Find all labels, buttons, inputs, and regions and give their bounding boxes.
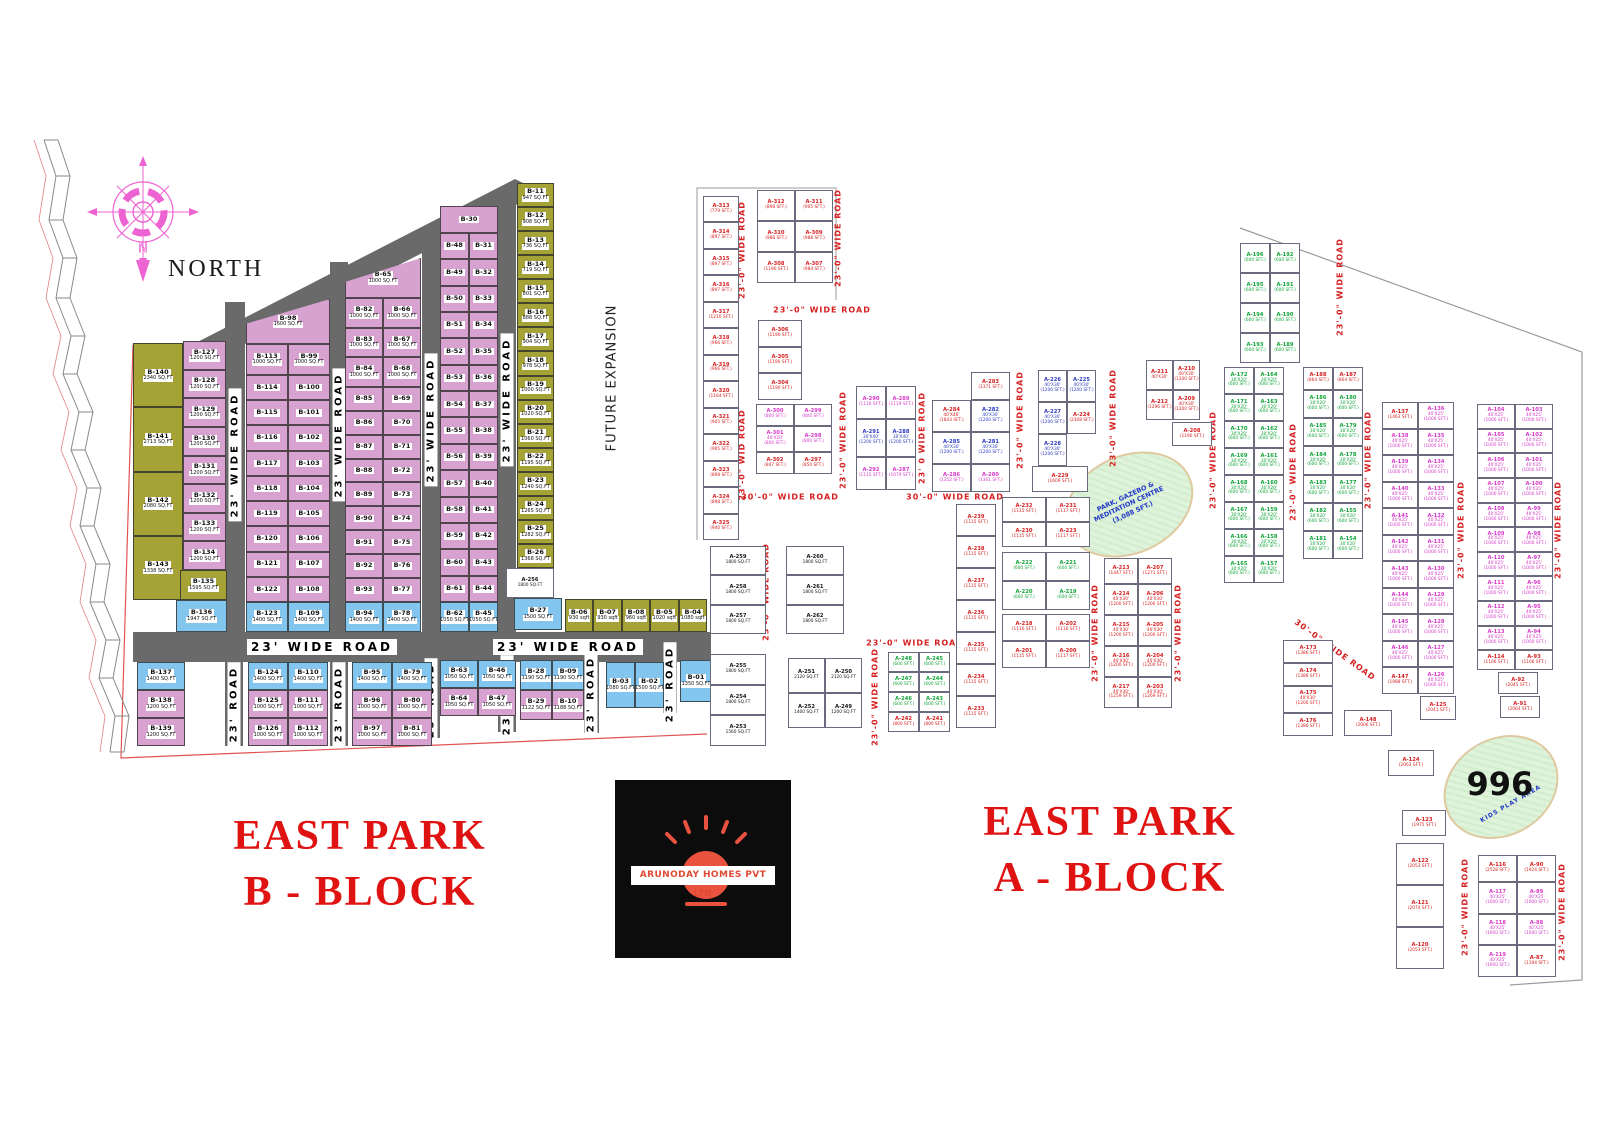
road-label-chip: 23' WIDE ROAD: [229, 389, 242, 522]
plot-id: B-53: [444, 374, 465, 381]
plot-cell: A-195(600 SFT.): [1240, 273, 1270, 303]
plot-size: (600 SFT.): [893, 663, 915, 668]
plot-size: 801 SQ.FT: [522, 292, 550, 298]
plot-id: B-108: [296, 586, 321, 593]
plot-size: 1400 SQ.FT: [252, 618, 283, 624]
plot-cell: B-102: [288, 425, 330, 450]
plot-size: (600 SFT.): [1337, 548, 1359, 553]
plot-id: B-73: [392, 491, 413, 498]
plot-size: 1000 SQ.FT: [349, 373, 380, 379]
plot-zone-b-pair-d-blue: B-941400 SQ.FTB-781400 SQ.FT: [345, 602, 421, 632]
plot-cell: B-281190 SQ.FT: [520, 660, 552, 690]
plot-cell: B-120: [246, 526, 288, 551]
plot-cell: A-321(905 SFT.): [703, 408, 739, 434]
plot-cell: A-15530'X20'(600 SFT.): [1333, 503, 1363, 531]
plot-cell: B-07930 sqft: [593, 599, 621, 632]
plot-id: B-88: [354, 467, 375, 474]
plot-cell: B-74: [383, 506, 421, 530]
plot-cell: B-50: [440, 286, 469, 312]
plot-cell: B-811000 SQ.FT: [392, 718, 432, 746]
plot-cell: B-101188 SQ.FT: [552, 690, 584, 720]
plot-size: 1400 SQ.FT: [387, 618, 418, 624]
plot-cell: B-1402340 SQ.FT: [133, 343, 183, 407]
plot-cell: A-9440'X25'(1000 SFT.): [1515, 626, 1553, 651]
plot-size: 1200 SQ.FT: [146, 733, 177, 739]
plot-cell: A-309(988 SFT.): [795, 221, 833, 252]
plot-cell: B-14719 SQ.FT: [517, 255, 554, 279]
plot-id: B-41: [473, 506, 494, 513]
plot-zone-b-olive-left: B-1402340 SQ.FTB-1412713 SQ.FTB-1422080 …: [133, 343, 183, 600]
plot-cell: A-2611800 SQ.FT: [786, 575, 844, 604]
plot-cell: A-28240'X30'(1200 SFT.): [971, 400, 1010, 432]
plot-cell: A-20340'X30'(1269 SFT.): [1138, 677, 1172, 708]
plot-cell: B-77: [383, 578, 421, 602]
plot-size: 1000 SQ.FT: [293, 733, 324, 739]
plot-cell: A-17730'X20'(600 SFT.): [1333, 475, 1363, 503]
plot-cell: A-17030'X20'(600 SFT.): [1224, 421, 1254, 448]
plot-size: (1843 SFT.): [939, 419, 963, 424]
plot-cell: A-137(1463 SFT.): [1382, 402, 1418, 429]
plot-size: 904 SQ.FT: [522, 340, 550, 346]
road-label-chip: 23' ROAD: [228, 662, 241, 746]
plot-size: (1115 SFT.): [964, 681, 988, 686]
plot-cell: A-120(2053 SFT.): [1396, 927, 1444, 969]
plot-cell: A-14540'X25'(1000 SFT.): [1382, 614, 1418, 641]
plot-cell: A-219(600 SFT.): [1046, 581, 1090, 610]
plot-size: (1210 SFT.): [709, 316, 733, 321]
plot-size: (1190 SFT.): [1180, 435, 1204, 440]
plot-size: 2080 SQ.FT: [143, 504, 174, 510]
plot-size: (1200 SFT.): [1174, 378, 1198, 383]
plot-cell: A-8940'X25'(1000 SFT.): [1517, 882, 1556, 914]
plot-id: B-87: [354, 443, 375, 450]
plot-cell: A-20440'X30'(1200 SFT.): [1138, 646, 1172, 677]
plot-size: (600 SFT.): [1337, 435, 1359, 440]
plot-size: (1000 SFT.): [1522, 518, 1546, 523]
plot-size: (1609 SFT.): [1048, 480, 1072, 485]
road-label-text: 23'-0" WIDE ROAD: [1109, 369, 1118, 467]
plot-size: (1115 SFT.): [859, 474, 883, 479]
road-label-chip: 23' ROAD: [664, 642, 677, 726]
plot-id: B-90: [354, 515, 375, 522]
plot-cell: A-14640'X25'(1000 SFT.): [1382, 641, 1418, 668]
plot-cell: B-122: [246, 577, 288, 602]
plot-cell: A-201(1115 SFT.): [1002, 641, 1046, 668]
plot-size: 1080 SQ.FT: [606, 686, 635, 692]
plot-size: (600 SFT.): [1337, 492, 1359, 497]
plot-size: 1190 SQ.FT: [521, 676, 552, 682]
plot-id: B-117: [254, 460, 279, 467]
plot-cell: B-40: [469, 470, 498, 496]
plot-size: (800 SFT.): [802, 415, 824, 420]
plot-size: 1000 SQ.FT: [357, 733, 388, 739]
plot-cell: B-1331200 SQ.FT: [183, 513, 226, 542]
road-label-text: 23'-0" WIDE ROAD: [773, 306, 871, 315]
plot-size: (600 SFT.): [893, 703, 915, 708]
plot-size: (1352 SFT.): [939, 479, 963, 484]
plot-size: (1200 SFT.): [1109, 664, 1133, 669]
plot-cell: A-16030'X20'(600 SFT.): [1254, 475, 1284, 502]
plot-size: (1116 SFT.): [1056, 628, 1080, 633]
plot-cell: A-16930'X20'(600 SFT.): [1224, 448, 1254, 475]
plot-cell: A-314(897 SFT.): [703, 222, 739, 248]
plot-size: 1080 sqft: [680, 616, 706, 622]
plot-cell: B-16888 SQ.FT: [517, 303, 554, 327]
plot-zone-a-col-173: A-173(1386 SFT.)A-174(1386 SFT.)A-17540'…: [1283, 640, 1333, 736]
plot-cell: B-051020 sqft: [650, 599, 678, 632]
plot-cell: A-297(850 SFT.): [794, 452, 832, 474]
plot-id: B-61: [444, 585, 465, 592]
plot-size: 1200 SQ.FT: [189, 528, 220, 534]
plot-size: 908 SQ.FT: [522, 220, 550, 226]
plot-cell: B-261368 SQ.FT: [517, 544, 554, 568]
plot-size: (600 SFT.): [1013, 596, 1035, 601]
plot-cell: A-9940'X25'(1000 SFT.): [1515, 503, 1553, 528]
plot-size: 1200 SQ.FT: [189, 385, 220, 391]
plot-cell: B-06930 sqft: [565, 599, 593, 632]
plot-size: 1282 SQ.FT: [520, 533, 551, 539]
plot-cell: A-16630'X20'(600 SFT.): [1224, 529, 1254, 556]
plot-id: B-58: [444, 506, 465, 513]
a-block-title-line2: A - BLOCK: [950, 854, 1270, 902]
plot-cell: A-22840'X30'(1200 SFT.): [1038, 434, 1067, 466]
plot-cell: B-801000 SQ.FT: [392, 690, 432, 718]
plot-size: (966 SFT.): [710, 342, 732, 347]
plot-cell: A-313(779 SFT.): [703, 196, 739, 222]
compass-n-letter: N: [138, 241, 148, 256]
plot-cell: B-461050 SQ.FT: [478, 660, 516, 688]
plot-cell: A-174(1386 SFT.): [1283, 663, 1333, 686]
plot-zone-b-pair-c-blue: B-1231400 SQ.FTB-1091400 SQ.FT: [246, 602, 330, 632]
plot-cell: B-621050 SQ.FT: [440, 602, 469, 632]
plot-cell: B-241265 SQ.FT: [517, 496, 554, 520]
plot-cell: A-187(864 SFT.): [1333, 367, 1363, 390]
plot-size: (1924 SFT.): [1524, 869, 1548, 874]
plot-size: 1600 SQ.FT: [273, 322, 304, 328]
plot-cell: B-1101400 SQ.FT: [288, 662, 328, 690]
plot-zone-a-col-122: A-122(2053 SFT.)A-121(2074 SFT.)A-120(20…: [1396, 843, 1444, 969]
plot-size: (600 SFT.): [924, 703, 946, 708]
plot-cell: B-221195 SQ.FT: [517, 448, 554, 472]
plot-size: (600 SFT.): [1013, 567, 1035, 572]
plot-cell: A-116(2528 SFT.): [1478, 855, 1517, 882]
plot-cell: A-202(1116 SFT.): [1046, 614, 1090, 641]
plot-cell: A-11140'X25'(1000 SFT.): [1477, 576, 1515, 601]
survey-strip-boundary: [34, 140, 129, 752]
plot-cell: A-124(2063 SFT.): [1388, 750, 1434, 776]
plot-zone-b-olive-row: B-06930 sqftB-07930 sqftB-08960 sqftB-05…: [565, 599, 707, 632]
plot-cell: A-17540'X30'(1200 SFT.): [1283, 686, 1333, 714]
plot-size: (600 SFT.): [1228, 464, 1250, 469]
plot-size: (1190 SFT.): [768, 334, 792, 339]
plot-cell: B-88: [345, 459, 383, 483]
future-expansion-label: FUTURE EXPANSION: [605, 305, 620, 452]
plot-size: (2053 SFT.): [1408, 949, 1432, 954]
plot-cell: B-021500 SQ.FT: [635, 662, 664, 708]
plot-id: B-77: [392, 586, 413, 593]
plot-size: (1000 SFT.): [1522, 493, 1546, 498]
plot-cell: B-104: [288, 476, 330, 501]
plot-zone-a-grid-251: A-2512120 SQ.FTA-2502120 SQ.FTA-2521400 …: [788, 658, 862, 728]
plot-size: (1000 SFT.): [1524, 932, 1548, 937]
plot-cell: A-15430'X20'(600 SFT.): [1333, 531, 1363, 559]
plot-cell: B-1361947 SQ.FT: [176, 600, 227, 632]
plot-cell: A-315(897 SFT.): [703, 249, 739, 275]
plot-cell: A-2521400 SQ.FT: [788, 693, 825, 728]
plot-cell: A-22740'X30'(1200 SFT.): [1038, 402, 1067, 434]
plot-cell: A-90(1924 SFT.): [1517, 855, 1556, 882]
plot-zone-a-pair-232: A-232(1115 SFT.)A-231(1117 SFT.)A-230(11…: [1002, 497, 1090, 547]
developer-logo: ARUNODAY HOMES PVT LTD: [615, 780, 791, 958]
plot-cell: B-38: [469, 417, 498, 443]
plot-size: 1000 SQ.FT: [349, 343, 380, 349]
plot-size: (1200 SFT.): [1109, 603, 1133, 608]
plot-cell: A-298(800 SFT.): [794, 426, 832, 453]
plot-size: (600 SFT.): [1228, 572, 1250, 577]
plot-cell: A-9740'X25'(1000 SFT.): [1515, 552, 1553, 577]
plot-size: (2053 SFT.): [1408, 865, 1432, 870]
plot-cell: B-48: [440, 233, 469, 259]
plot-size: (1106 SFT.): [1522, 661, 1546, 666]
plot-zone-a-col-255: A-2551800 SQ.FTA-2541800 SQ.FTA-2531560 …: [710, 654, 766, 746]
plot-size: 1060 SQ.FT: [520, 437, 551, 443]
plot-cell: A-290(1110 SFT.): [856, 386, 886, 419]
plot-cell: A-13040'X25'(1000 SFT.): [1418, 561, 1454, 588]
plot-cell: B-42: [469, 523, 498, 549]
plot-size: (1200 SFT.): [1296, 702, 1320, 707]
plot-cell: A-242(800 SFT.): [888, 712, 919, 732]
plot-cell: A-317(1210 SFT.): [703, 302, 739, 328]
plot-size: (1000 SFT.): [1484, 542, 1508, 547]
plot-size: (1117 SFT.): [1056, 535, 1080, 540]
plot-cell: A-14440'X25'(1000 SFT.): [1382, 588, 1418, 615]
plot-zone-b-pair-02: B-031080 SQ.FTB-021500 SQ.FT: [606, 662, 664, 708]
plot-size: (2045 SFT.): [1506, 684, 1530, 689]
plot-size: (897 SFT.): [710, 289, 732, 294]
plot-size: (1200 SFT.): [1174, 408, 1198, 413]
plot-size: 1265 SQ.FT: [520, 509, 551, 515]
plot-cell: A-21740'X30'(1259 SFT.): [1104, 677, 1138, 708]
plot-size: (1988 SFT.): [1388, 681, 1412, 686]
plot-zone-a-148: A-148(2006 SFT.): [1344, 710, 1392, 736]
plot-size: 1000 SQ.FT: [387, 314, 418, 320]
plot-cell: B-191000 SQ.FT: [517, 376, 554, 400]
plot-cell: B-1321200 SQ.FT: [183, 484, 226, 513]
plot-cell: A-200(1117 SFT.): [1046, 641, 1090, 668]
plot-cell: A-122(2053 SFT.): [1396, 843, 1444, 885]
plot-zone-b-27: B-271500 SQ.FT: [514, 598, 562, 630]
plot-size: (1200 SFT.): [1040, 421, 1064, 426]
plot-size: 1800 SQ.FT: [726, 591, 751, 596]
road-label-text: 30'-0" WIDE ROAD: [741, 493, 839, 502]
plot-size: 1200 SQ.FT: [189, 557, 220, 563]
plot-cell: B-107: [288, 552, 330, 577]
plot-size: 1400 SQ.FT: [349, 618, 380, 624]
plot-zone-a-strip-mid: A-306(1190 SFT.)A-305(1190 SFT.)A-304(11…: [758, 320, 802, 400]
plot-cell: A-21440'X30'(1200 SFT.): [1104, 584, 1138, 615]
plot-cell: B-15801 SQ.FT: [517, 279, 554, 303]
plot-size: (600 SFT.): [1307, 548, 1329, 553]
plot-cell: A-196(600 SFT.): [1240, 243, 1270, 273]
plot-size: 1000 SQ.FT: [397, 733, 428, 739]
plot-size: 1368 SQ.FT: [520, 557, 551, 563]
plot-cell: A-22540'X30'(1200 SFT.): [1067, 370, 1096, 402]
plot-cell: B-831000 SQ.FT: [345, 328, 383, 358]
plot-size: (1115 SFT.): [964, 649, 988, 654]
plot-id: B-103: [296, 460, 321, 467]
plot-cell: A-13840'X25'(1000 SFT.): [1382, 429, 1418, 456]
plot-cell: A-10640'X25'(1000 SFT.): [1477, 453, 1515, 478]
plot-cell: A-13540'X25'(1000 SFT.): [1418, 429, 1454, 456]
plot-id: B-39: [473, 453, 494, 460]
plot-size: 1050 SQ.FT: [444, 703, 475, 709]
plot-size: (1296 SFT.): [1147, 406, 1171, 411]
plot-size: (600 SFT.): [1337, 407, 1359, 412]
plot-id: B-42: [473, 532, 494, 539]
plot-cell: A-247(600 SFT.): [888, 672, 919, 692]
plot-cell: A-308(1190 SFT.): [757, 252, 795, 283]
plot-size: 960 sqft: [625, 616, 648, 622]
plot-cell: B-091190 SQ.FT: [552, 660, 584, 690]
plot-size: (1000 SFT.): [1388, 578, 1412, 583]
plot-cell: B-60: [440, 549, 469, 575]
plot-size: (600 SFT.): [1274, 259, 1296, 264]
plot-size: 1000 SQ.FT: [349, 314, 380, 320]
plot-size: 930 sqft: [568, 616, 591, 622]
plot-cell: A-16330'X20'(600 SFT.): [1254, 394, 1284, 421]
plot-cell: A-14140'X25'(1000 SFT.): [1382, 508, 1418, 535]
road-label-chip: 23' WIDE ROAD: [333, 369, 346, 502]
plot-cell: A-13940'X25'(1000 SFT.): [1382, 455, 1418, 482]
plot-cell: A-300(800 SFT.): [756, 404, 794, 426]
plot-cell: A-16130'X20'(600 SFT.): [1254, 448, 1284, 475]
road-label-text: 23' 0 WIDE ROAD: [918, 392, 927, 484]
plot-cell: B-100: [288, 375, 330, 400]
road-label-text: 23'-0" WIDE ROAD: [1174, 584, 1183, 682]
plot-id: B-101: [296, 409, 321, 416]
plot-size: (600 SFT.): [1244, 259, 1266, 264]
plot-size: 1020 SQ.FT: [520, 412, 551, 418]
plot-id: B-33: [473, 295, 494, 302]
plot-cell: A-13140'X25'(1000 SFT.): [1418, 535, 1454, 562]
plot-cell: B-1291200 SQ.FT: [183, 398, 226, 427]
plot-cell: B-1391200 SQ.FT: [137, 718, 185, 746]
plot-cell: B-76: [383, 554, 421, 578]
plot-cell: A-13440'X25'(1000 SFT.): [1418, 455, 1454, 482]
plot-zone-a-pair-290: A-290(1110 SFT.)A-289(1119 SFT.)A-29130'…: [856, 386, 916, 490]
plot-size: 1200 SQ.FT: [189, 471, 220, 477]
plot-size: (1119 SFT.): [889, 403, 913, 408]
plot-cell: B-661000 SQ.FT: [383, 298, 421, 328]
plot-id: B-76: [392, 562, 413, 569]
plot-size: (988 SFT.): [765, 237, 787, 242]
plot-cell: A-324(898 SFT.): [703, 487, 739, 513]
plot-cell: A-28830'X40'(1200 SFT.): [886, 419, 916, 457]
plot-size: (1200 SFT.): [1040, 453, 1064, 458]
plot-cell: A-28540'X30'(1200 SFT.): [932, 432, 971, 464]
plot-cell: B-031080 SQ.FT: [606, 662, 635, 708]
plot-cell: B-55: [440, 417, 469, 443]
plot-size: (988 SFT.): [803, 237, 825, 242]
plot-size: (1000 SFT.): [1522, 567, 1546, 572]
plot-cell: B-291122 SQ.FT: [520, 690, 552, 720]
plot-size: (600 SFT.): [1258, 464, 1280, 469]
road-label-chip: 23' WIDE ROAD: [425, 354, 438, 487]
plot-size: 1800 SQ.FT: [726, 561, 751, 566]
plot-cell: A-222(600 SFT.): [1002, 552, 1046, 581]
plot-cell: A-18030'X20'(600 SFT.): [1333, 390, 1363, 418]
plot-zone-b-pair-c: B-1131000 SQ.FTB-991000 SQ.FTB-114B-100B…: [246, 344, 330, 602]
plot-cell: B-961000 SQ.FT: [352, 690, 392, 718]
plot-cell: A-18330'X20'(600 SFT.): [1303, 475, 1333, 503]
plot-cell: B-70: [383, 411, 421, 435]
plot-cell: B-116: [246, 425, 288, 450]
plot-size: (1000 SFT.): [1524, 901, 1548, 906]
plot-size: (600 SFT.): [1307, 435, 1329, 440]
plot-size: (2308 SFT.): [1069, 419, 1093, 424]
plot-id: B-71: [392, 443, 413, 450]
plot-size: 40'X30': [1151, 376, 1167, 381]
plot-cell: B-1281200 SQ.FT: [183, 370, 226, 399]
plot-cell: B-31: [469, 233, 498, 259]
plot-cell: B-841000 SQ.FT: [345, 357, 383, 387]
plot-size: (1000 SFT.): [1522, 616, 1546, 621]
plot-id: B-36: [473, 374, 494, 381]
plot-cell: A-318(966 SFT.): [703, 328, 739, 354]
plot-size: (1200 SFT.): [1109, 634, 1133, 639]
plot-id: B-107: [296, 560, 321, 567]
plot-size: (1371 SFT.): [978, 386, 1002, 391]
plot-zone-a-92: A-92(2045 SFT.): [1498, 672, 1538, 694]
plot-size: 1595 SQ.FT: [188, 586, 219, 592]
plot-cell: A-10240'X25'(1000 SFT.): [1515, 429, 1553, 454]
plot-cell: B-90: [345, 506, 383, 530]
plot-cell: A-93(1106 SFT.): [1515, 650, 1553, 670]
plot-size: 1400 SQ.FT: [294, 618, 325, 624]
plot-zone-a-col-260: A-2601800 SQ.FTA-2611800 SQ.FTA-2621800 …: [786, 546, 844, 634]
plot-size: (1000 SFT.): [1484, 419, 1508, 424]
plot-size: (1000 SFT.): [1424, 631, 1448, 636]
road-label-text: 23'-0" WIDE ROAD: [1336, 238, 1345, 336]
plot-size: (1000 SFT.): [1388, 604, 1412, 609]
plot-size: (600 SFT.): [924, 663, 946, 668]
plot-cell: B-36: [469, 365, 498, 391]
plot-cell: B-1341200 SQ.FT: [183, 541, 226, 570]
plot-zone-b-col-127: B-1271200 SQ.FTB-1281200 SQ.FTB-1291200 …: [183, 341, 226, 570]
plot-size: (600 SFT.): [1228, 437, 1250, 442]
plot-id: B-35: [473, 348, 494, 355]
plot-cell: B-631050 SQ.FT: [440, 660, 478, 688]
plot-cell: B-781400 SQ.FT: [383, 602, 421, 632]
plot-size: 1800 SQ.FT: [518, 584, 543, 589]
plot-id: B-40: [473, 480, 494, 487]
site-plan-canvas: N NORTH FUTURE EXPANSION EAST PARK B - B…: [0, 0, 1600, 1131]
plot-size: 1500 SQ.FT: [523, 615, 554, 621]
plot-zone-a-green-0: A-196(600 SFT.)A-192(600 SFT.)A-195(600 …: [1240, 243, 1300, 363]
plot-size: 1200 SQ.FT: [189, 356, 220, 362]
plot-size: (1115 SFT.): [964, 553, 988, 558]
plot-id: B-69: [392, 395, 413, 402]
plot-cell: A-245(600 SFT.): [919, 652, 950, 672]
plot-cell: A-244(600 SFT.): [919, 672, 950, 692]
plot-size: 1122 SQ.FT: [521, 706, 552, 712]
plot-cell: A-11740'X25'(1000 SFT.): [1478, 882, 1517, 914]
plot-size: (897 SFT.): [710, 236, 732, 241]
plot-size: (600 SFT.): [1307, 492, 1329, 497]
plot-cell: A-243(600 SFT.): [919, 692, 950, 712]
plot-cell: A-21640'X30'(1200 SFT.): [1104, 646, 1138, 677]
plot-zone-a-91: A-91(2064 SFT.): [1500, 696, 1540, 718]
